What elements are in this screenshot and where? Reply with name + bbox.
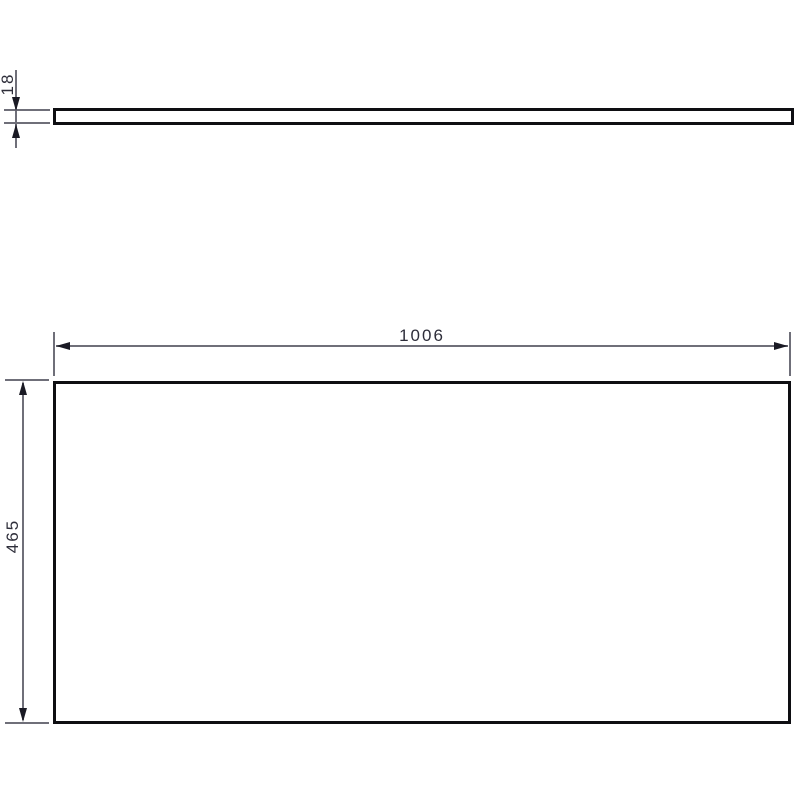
thickness-arrowhead-top — [12, 97, 20, 111]
width-arrowhead-left — [56, 342, 70, 350]
height-extension-line-top — [5, 379, 49, 381]
thickness-extension-line-bottom — [4, 122, 50, 124]
height-dimension-label: 465 — [3, 519, 23, 553]
height-arrowhead-bottom — [19, 708, 27, 722]
height-arrowhead-top — [19, 381, 27, 395]
side-view-panel-outline — [53, 108, 794, 125]
width-dimension-label: 1006 — [399, 326, 445, 346]
thickness-dimension-label: 18 — [0, 73, 18, 96]
width-extension-line-left — [53, 332, 55, 376]
height-extension-line-bottom — [5, 722, 49, 724]
thickness-arrowhead-bottom — [12, 124, 20, 138]
width-arrowhead-right — [774, 342, 788, 350]
front-view-panel-outline — [53, 381, 791, 724]
technical-drawing: 18 1006 465 — [0, 0, 800, 800]
width-extension-line-right — [789, 332, 791, 376]
thickness-extension-line-top — [4, 109, 50, 111]
